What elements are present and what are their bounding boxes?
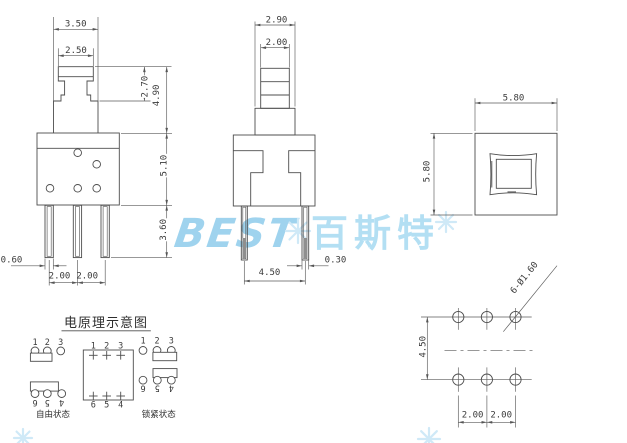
body-step-left	[233, 151, 263, 206]
pin-number: 6	[140, 382, 145, 392]
dim-hole-pitch-left: 2.00	[462, 410, 484, 420]
dim-total-plunger-height: 4.90	[152, 85, 162, 107]
dim-pin-width: 0.60	[1, 256, 23, 266]
switch-body-side-outline	[233, 135, 315, 206]
pin-number: 4	[169, 382, 174, 392]
dim-hole-pitch-right: 2.00	[490, 410, 512, 420]
contact	[139, 347, 147, 355]
plunger-base-outline	[255, 108, 295, 135]
pin-number: 3	[58, 338, 63, 348]
contact-bridge	[30, 353, 52, 361]
pin-number: 2	[104, 341, 109, 351]
pin-number: 4	[118, 400, 123, 410]
pin-number: 6	[32, 397, 37, 407]
bottom-view: 4.50 2.00 2.00 6-Ø1.60	[418, 260, 557, 428]
dim-body-height: 5.10	[159, 155, 169, 177]
pinout-box: 1 2 3 6 5 4	[83, 341, 133, 410]
body-hole	[74, 149, 82, 157]
pin-number: 4	[59, 397, 64, 407]
dim-pin-pitch-right: 2.00	[76, 272, 98, 282]
pin-number: 3	[169, 337, 174, 347]
pinout-box-outline	[83, 350, 133, 400]
body-hole	[46, 185, 54, 193]
hole-callout: 6-Ø1.60	[508, 260, 540, 296]
bottom-view-geometry	[421, 266, 557, 392]
plunger-side-outline	[261, 68, 290, 108]
contact	[58, 390, 66, 398]
drawing-sheet: BEST 百斯特	[0, 0, 627, 443]
button-top-face	[496, 159, 531, 188]
dim-stem-width: 2.00	[266, 38, 288, 48]
dim-top-width: 5.80	[503, 93, 525, 103]
top-view-geometry	[475, 133, 557, 215]
free-state-label: 自由状态	[36, 409, 71, 420]
top-view: 5.80 5.80	[423, 93, 558, 215]
snowflake-icon	[14, 429, 32, 443]
contact-bridge	[153, 352, 177, 360]
body-hole	[93, 185, 101, 193]
schematic-title: 电原理示意图	[64, 315, 148, 331]
pin-number: 5	[155, 382, 160, 392]
body-hole	[93, 161, 101, 169]
switch-body-outline	[37, 133, 119, 205]
front-view-geometry	[37, 67, 119, 258]
locked-state-label: 锁紧状态	[142, 409, 177, 420]
locked-state-group: 1 2 3 6 5 4 锁紧状态	[139, 337, 177, 421]
front-view-dimensions: 3.50 2.50 2.70 4.90 5.10 3.60 0.60	[1, 17, 172, 286]
bottom-view-dimensions: 4.50 2.00 2.00 6-Ø1.60	[418, 260, 540, 428]
watermark-brand-text: 百斯特	[311, 212, 440, 255]
body-hole	[74, 185, 82, 193]
contact	[31, 390, 39, 398]
pin-number: 1	[140, 337, 145, 347]
dim-top-height: 5.80	[423, 161, 433, 183]
pin-number: 1	[91, 341, 96, 351]
dim-pin-span: 4.50	[259, 268, 281, 278]
body-step-right	[289, 151, 315, 206]
top-view-body-outline	[475, 133, 557, 215]
dim-cap-top-width: 2.50	[65, 46, 87, 56]
dim-cap-width: 3.50	[65, 19, 87, 29]
pin-number: 6	[91, 400, 96, 410]
pin-number: 2	[154, 337, 159, 347]
dim-pin-pitch-left: 2.00	[49, 272, 71, 282]
dim-plunger-height: 2.70	[140, 76, 150, 98]
terminal-pins	[45, 205, 109, 257]
pin-number: 5	[45, 397, 50, 407]
pin-number: 3	[118, 341, 123, 351]
pin-number: 5	[104, 400, 109, 410]
free-state-group: 1 2 3 6 5 4 自由状态	[30, 338, 70, 420]
dim-row-spacing: 4.50	[418, 336, 428, 358]
watermark-logo-text: BEST	[172, 211, 302, 257]
pin-cross-marks	[89, 351, 125, 400]
schematic: 电原理示意图 1 2 3 6 5 4 自由状态 1 2 3	[30, 315, 177, 420]
pin-number: 1	[32, 338, 37, 348]
snowflake-icon	[418, 428, 440, 443]
dim-pin-length: 3.60	[159, 219, 169, 241]
dim-pin-thickness: 0.30	[325, 256, 347, 266]
pin-number: 2	[45, 338, 50, 348]
contact	[43, 390, 51, 398]
dim-base-width: 2.90	[266, 15, 288, 25]
front-view: 3.50 2.50 2.70 4.90 5.10 3.60 0.60	[1, 17, 172, 286]
drawing-canvas: BEST 百斯特	[0, 0, 627, 443]
contact	[57, 347, 65, 355]
